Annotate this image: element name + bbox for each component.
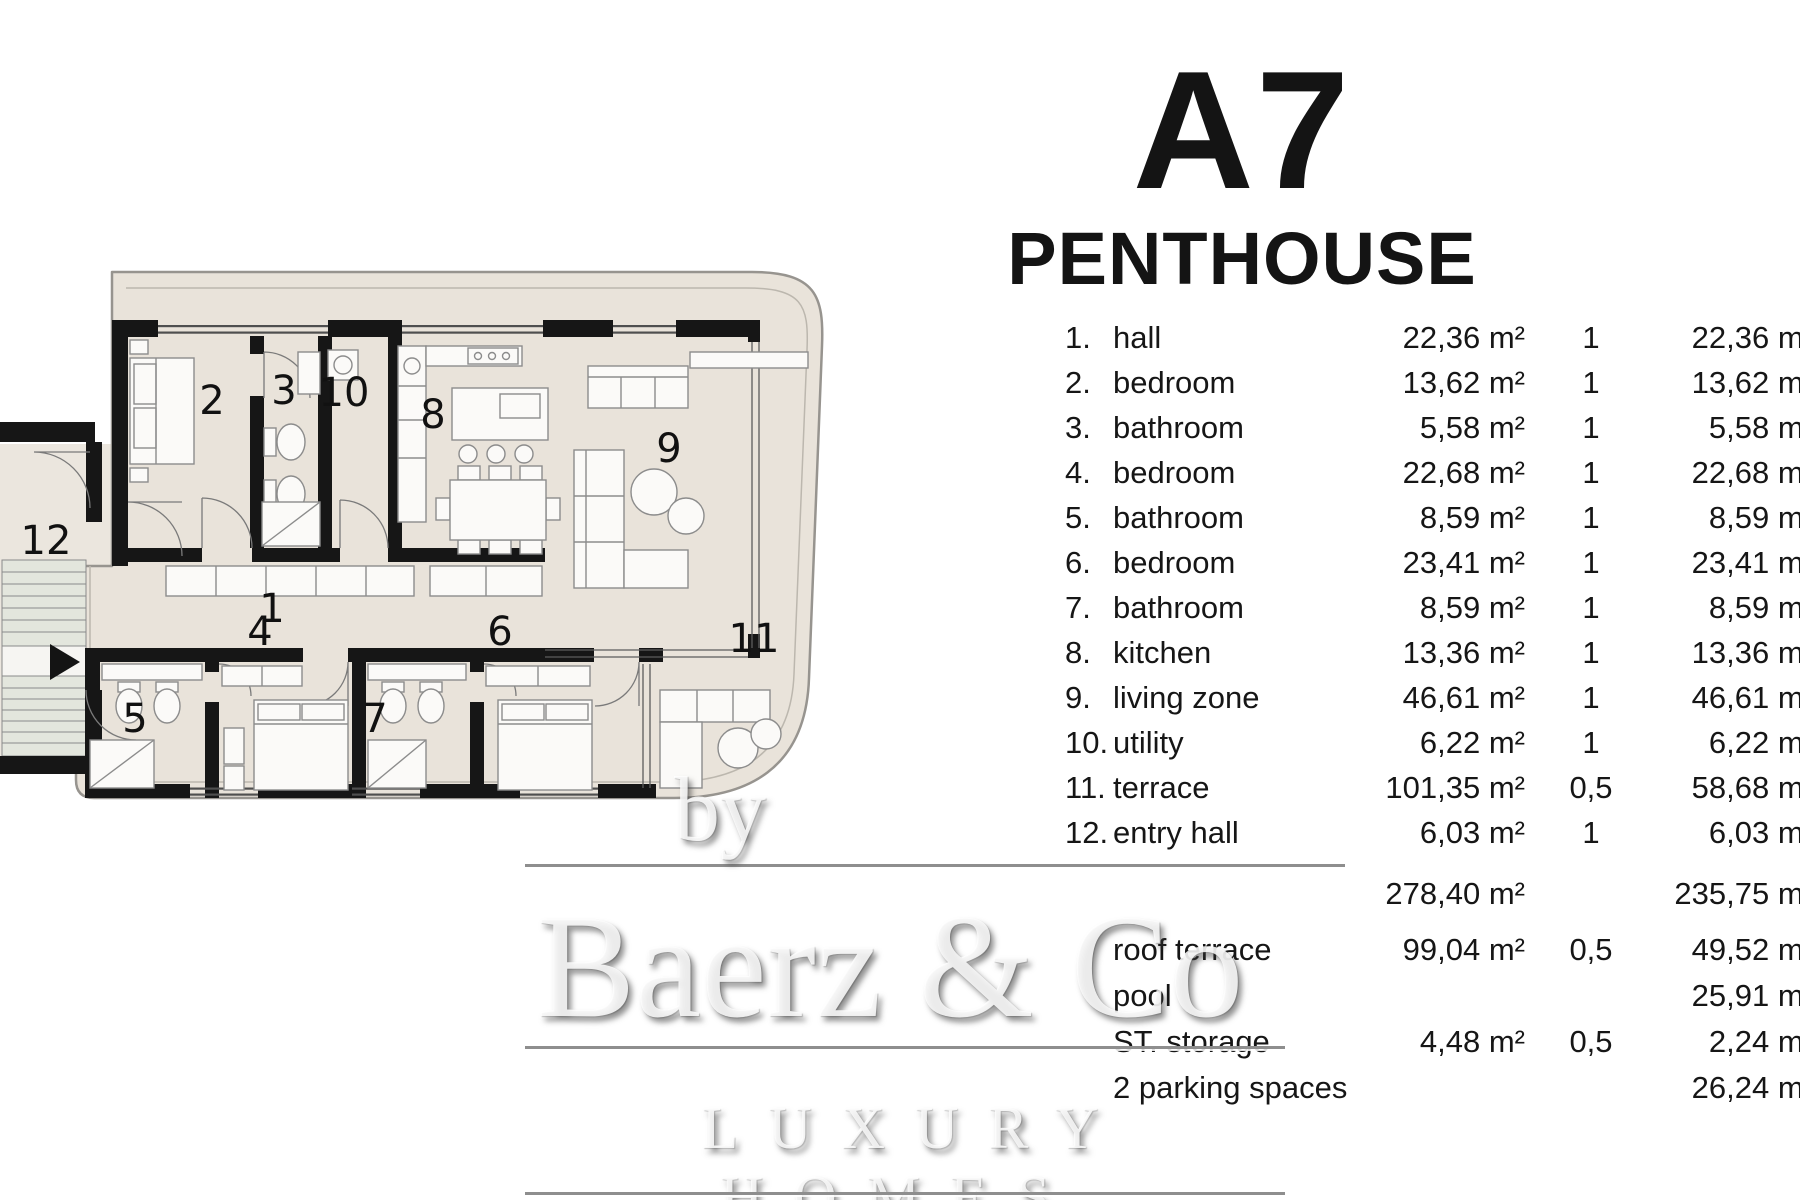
dresser (224, 728, 244, 764)
room-coefficient (1525, 973, 1657, 1019)
summary-label (1113, 871, 1355, 916)
room-area: 13,36 m² (1355, 630, 1525, 675)
room-label-utility: 10 (319, 370, 370, 416)
sofa (588, 366, 688, 408)
room-number: 6. (1065, 540, 1113, 585)
room-row: 5.bathroom8,59 m²18,59 m² (1065, 495, 1800, 540)
extra-row: pool25,91 m² (1065, 973, 1800, 1019)
room-total-area: 6,22 m² (1657, 720, 1800, 765)
toilet (277, 424, 305, 460)
room-coefficient: 0,5 (1525, 765, 1657, 810)
unit-code: A7 (892, 46, 1592, 214)
room-total-area: 8,59 m² (1657, 495, 1800, 540)
room-area: 4,48 m² (1355, 1019, 1525, 1065)
room-label-bathroom3: 3 (271, 368, 296, 414)
room-name: bedroom (1113, 360, 1355, 405)
room-area: 22,36 m² (1355, 315, 1525, 360)
floorplan-page: 1 2 3 4 5 6 7 8 9 10 11 12 A7 PENTHOUSE … (0, 0, 1800, 1200)
room-area: 5,58 m² (1355, 405, 1525, 450)
room-number: 4. (1065, 450, 1113, 495)
vanity (102, 664, 202, 680)
room-name: terrace (1113, 765, 1355, 810)
room-number: 1. (1065, 315, 1113, 360)
room-coefficient: 1 (1525, 360, 1657, 405)
sideboard (690, 352, 808, 368)
room-row: 3.bathroom5,58 m²15,58 m² (1065, 405, 1800, 450)
toilet (418, 689, 444, 723)
closet (166, 566, 414, 596)
room-name: 2 parking spaces (1113, 1065, 1355, 1111)
room-label-terrace: 11 (729, 616, 780, 662)
summary-num (1065, 871, 1113, 916)
room-row: 8.kitchen13,36 m²113,36 m² (1065, 630, 1800, 675)
summary-area: 278,40 m² (1355, 871, 1525, 916)
stool (487, 445, 505, 463)
room-name: bathroom (1113, 585, 1355, 630)
room-name: bathroom (1113, 405, 1355, 450)
room-number: 8. (1065, 630, 1113, 675)
sink (298, 352, 320, 394)
room-name: bedroom (1113, 450, 1355, 495)
room-number: 2. (1065, 360, 1113, 405)
room-total-area: 26,24 m² (1657, 1065, 1800, 1111)
room-total-area: 2,24 m² (1657, 1019, 1800, 1065)
room-coefficient: 1 (1525, 315, 1657, 360)
toilet (154, 689, 180, 723)
staircase (2, 560, 86, 756)
room-row: 4.bedroom22,68 m²122,68 m² (1065, 450, 1800, 495)
room-area: 6,03 m² (1355, 810, 1525, 855)
room-label-bedroom4: 4 (247, 609, 272, 655)
room-coefficient: 1 (1525, 405, 1657, 450)
room-area: 99,04 m² (1355, 927, 1525, 973)
room-name: pool (1113, 973, 1355, 1019)
room-coefficient: 1 (1525, 720, 1657, 765)
room-row: 12.entry hall6,03 m²16,03 m² (1065, 810, 1800, 855)
room-total-area: 8,59 m² (1657, 585, 1800, 630)
room-label-kitchen: 8 (420, 392, 445, 438)
room-total-area: 25,91 m² (1657, 973, 1800, 1019)
unit-type: PENTHOUSE (892, 222, 1592, 296)
room-total-area: 22,68 m² (1657, 450, 1800, 495)
summary-coef (1525, 871, 1657, 916)
room-number (1065, 1019, 1113, 1065)
room-coefficient: 1 (1525, 540, 1657, 585)
room-number (1065, 927, 1113, 973)
title-block: A7 PENTHOUSE (892, 0, 1592, 296)
room-row: 1.hall22,36 m²122,36 m² (1065, 315, 1800, 360)
room-total-area: 5,58 m² (1657, 405, 1800, 450)
extra-row: roof terrace99,04 m²0,549,52 m² (1065, 927, 1800, 973)
room-area: 101,35 m² (1355, 765, 1525, 810)
room-area: 13,62 m² (1355, 360, 1525, 405)
corner-sofa (574, 450, 624, 588)
room-number: 7. (1065, 585, 1113, 630)
room-name: entry hall (1113, 810, 1355, 855)
room-label-entry-hall: 12 (21, 518, 72, 564)
stool (459, 445, 477, 463)
cooktop (468, 348, 518, 364)
room-area (1355, 1065, 1525, 1111)
room-row: 9.living zone46,61 m²146,61 m² (1065, 675, 1800, 720)
room-number: 9. (1065, 675, 1113, 720)
room-coefficient: 1 (1525, 675, 1657, 720)
room-coefficient: 1 (1525, 450, 1657, 495)
vanity (368, 664, 466, 680)
room-number (1065, 973, 1113, 1019)
room-coefficient: 1 (1525, 630, 1657, 675)
room-area (1355, 973, 1525, 1019)
room-area: 23,41 m² (1355, 540, 1525, 585)
room-total-area: 23,41 m² (1657, 540, 1800, 585)
room-row: 2.bedroom13,62 m²113,62 m² (1065, 360, 1800, 405)
room-number: 10. (1065, 720, 1113, 765)
room-label-bathroom7: 7 (362, 696, 387, 742)
room-name: living zone (1113, 675, 1355, 720)
room-number: 5. (1065, 495, 1113, 540)
dresser (224, 766, 244, 790)
room-name: kitchen (1113, 630, 1355, 675)
coffee-table (668, 498, 704, 534)
room-table: 1.hall22,36 m²122,36 m²2.bedroom13,62 m²… (1065, 315, 1800, 855)
room-total-area: 13,36 m² (1657, 630, 1800, 675)
room-total-area: 46,61 m² (1657, 675, 1800, 720)
summary-total: 235,75 m² (1657, 871, 1800, 916)
room-total-area: 49,52 m² (1657, 927, 1800, 973)
room-coefficient: 0,5 (1525, 1019, 1657, 1065)
room-area: 22,68 m² (1355, 450, 1525, 495)
extra-row: 2 parking spaces26,24 m² (1065, 1065, 1800, 1111)
room-coefficient: 1 (1525, 810, 1657, 855)
room-row: 7.bathroom8,59 m²18,59 m² (1065, 585, 1800, 630)
room-total-area: 22,36 m² (1657, 315, 1800, 360)
room-coefficient: 0,5 (1525, 927, 1657, 973)
room-name: roof terrace (1113, 927, 1355, 973)
room-name: bathroom (1113, 495, 1355, 540)
room-number: 3. (1065, 405, 1113, 450)
outdoor-table (751, 719, 781, 749)
outdoor-sofa (660, 690, 770, 722)
room-number: 12. (1065, 810, 1113, 855)
nightstand (130, 468, 148, 482)
summary-row: 278,40 m² 235,75 m² (1065, 871, 1800, 916)
room-area: 8,59 m² (1355, 585, 1525, 630)
room-total-area: 6,03 m² (1657, 810, 1800, 855)
room-label-living-zone: 9 (656, 426, 681, 472)
room-coefficient (1525, 1065, 1657, 1111)
stool (515, 445, 533, 463)
extras-table: roof terrace99,04 m²0,549,52 m²pool25,91… (1065, 927, 1800, 1111)
room-row: 10.utility6,22 m²16,22 m² (1065, 720, 1800, 765)
room-label-bedroom6: 6 (487, 609, 512, 655)
room-name: ST. storage (1113, 1019, 1355, 1065)
room-area: 6,22 m² (1355, 720, 1525, 765)
extra-row: ST. storage4,48 m²0,52,24 m² (1065, 1019, 1800, 1065)
nightstand (130, 340, 148, 354)
room-number (1065, 1065, 1113, 1111)
room-coefficient: 1 (1525, 585, 1657, 630)
room-name: utility (1113, 720, 1355, 765)
room-coefficient: 1 (1525, 495, 1657, 540)
room-number: 11. (1065, 765, 1113, 810)
room-name: bedroom (1113, 540, 1355, 585)
room-label-bedroom2: 2 (199, 378, 224, 424)
dining-table (450, 480, 546, 540)
room-row: 11.terrace101,35 m²0,558,68 m² (1065, 765, 1800, 810)
room-label-bathroom5: 5 (122, 696, 147, 742)
room-total-area: 13,62 m² (1657, 360, 1800, 405)
room-total-area: 58,68 m² (1657, 765, 1800, 810)
room-area: 8,59 m² (1355, 495, 1525, 540)
room-row: 6.bedroom23,41 m²123,41 m² (1065, 540, 1800, 585)
room-area: 46,61 m² (1355, 675, 1525, 720)
room-name: hall (1113, 315, 1355, 360)
